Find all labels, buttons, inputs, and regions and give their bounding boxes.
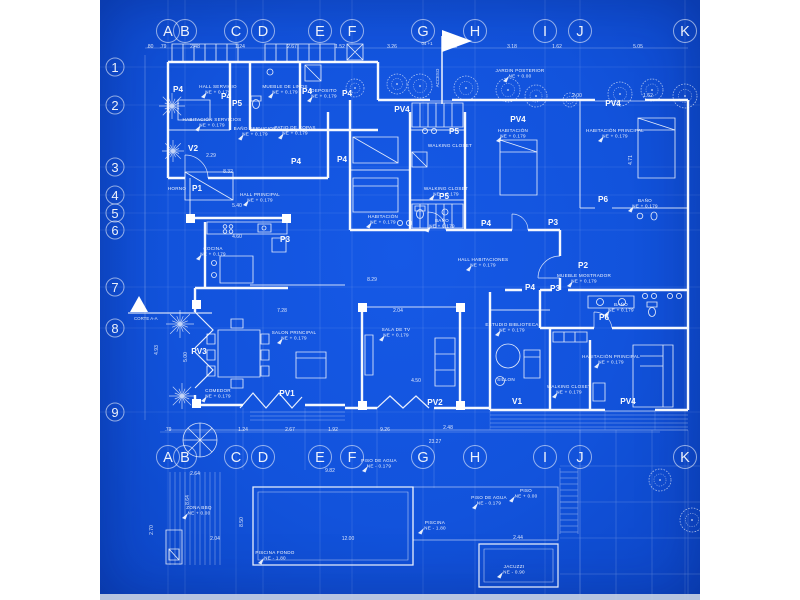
sink-icon [637,213,643,219]
room-label: COMEDORNE + 0.179 [205,388,231,399]
room-label: DEPOSITONE + 0.179 [311,88,337,99]
grid-column-label: I [543,450,547,466]
grid-column-label: K [680,450,690,466]
dimension-label: 8.64 [185,495,191,505]
section-cut-triangle-icon [130,296,148,312]
grid-row-label: 8 [111,321,118,336]
dimension-label: 2.67 [287,44,297,50]
paper-edge-strip [100,594,700,600]
palm-tree-icon [159,93,185,119]
dimension-label: 2.29 [206,153,216,159]
reference-lines [145,48,688,488]
toilet-icon [649,308,656,317]
room-label: WALKING CLOSETNE + 0.179 [547,384,591,395]
dimension-label: 3.26 [387,44,397,50]
dimension-label: 9.82 [325,468,335,474]
room-label: MUEBLE MOSTRADORNE + 0.179 [557,273,611,284]
stove-burner-icon [229,225,233,229]
dimension-label: 1.24 [235,44,245,50]
room-label: BAÑONE + 0.179 [429,217,455,229]
dimension-label: 2.44 [513,535,523,541]
dimension-label: 1.24 [238,427,248,433]
flag-side-note-label: 04 +1 [421,41,433,46]
grid-column-label: J [576,450,583,466]
door-code-label: V1 [512,397,522,406]
level-arrow-icon [503,76,509,83]
grid-column-label: F [348,24,357,40]
grid-column-label: G [417,24,428,40]
dimension-label: 2.04 [210,536,220,542]
grid-column-label: H [470,450,480,466]
dimension-label: 4.50 [411,378,421,384]
door-code-label: P4 [337,155,347,164]
dimension-label: .79 [165,427,172,433]
door-code-label: PV4 [620,397,636,406]
grid-row-label: 1 [111,60,118,75]
dimension-label: 2.00 [572,93,582,99]
room-label: PISO DE AGUANE - 0.179 [361,458,397,469]
dimension-label: 2.67 [285,427,295,433]
flag-note-label: ACCESO [435,68,440,87]
grid-column-label: B [180,450,190,466]
section-cut-label: CORTE A-A [134,316,158,321]
tree-icon [684,95,686,97]
stool-icon [212,273,217,278]
tree-icon [535,95,537,97]
level-arrow-icon [594,362,600,369]
door-code-label: P4 [221,92,231,101]
round-table-icon [496,344,520,368]
level-arrow-icon [509,496,515,503]
door-code-label: P4 [525,283,535,292]
dimension-label: 4.60 [232,234,242,240]
level-arrow-icon [268,92,274,99]
door-code-label: PV3 [191,347,207,356]
door-code-label: P5 [439,192,449,201]
note-labels: CORTE A-AACCESO04 +1 [134,41,440,321]
level-arrow-icon [238,134,244,141]
room-label: HALL PRINCIPALNE + 0.179 [240,192,280,203]
room-label: HABITACIÓN PRINCIPALNE + 0.179 [586,127,644,139]
door-code-label: P4 [302,87,312,96]
grid-column-label: I [543,24,547,40]
room-label: HORNO [168,186,187,191]
door-code-label: P3 [548,218,558,227]
level-arrow-icon [497,572,503,579]
sink-icon [267,69,273,75]
room-label: HABITACIÓNNE + 0.179 [498,127,528,139]
door-code-label: PV2 [427,398,443,407]
furniture [166,44,682,564]
sink-icon [442,209,448,215]
door-code-label: P2 [578,261,588,270]
dimension-label: 23.27 [429,439,442,445]
dimension-label: 9.26 [380,427,390,433]
tree-icon [651,89,653,91]
door-code-label: P5 [232,99,242,108]
dimension-label: 5.00 [183,352,189,362]
door-code-label: P5 [449,127,459,136]
dimension-label: 4.71 [628,155,634,165]
room-label: SALON PRINCIPALNE + 0.179 [272,330,317,341]
room-label: JACUZZINE - 0.90 [503,564,525,575]
room-label: HABITACIÓN SERVICIOSNE + 0.179 [183,116,242,128]
room-label: HALL HABITACIONESNE + 0.179 [458,257,509,268]
level-arrow-icon [466,265,472,272]
grid-column-label: D [258,450,268,466]
blueprint-sheet: AABBCCDDEEFFGGHHIIJJKK123456789 HALL SER… [100,0,700,600]
dimension-label: 4.93 [154,345,160,355]
level-arrow-icon [201,396,207,403]
room-label: PISONE + 0.00 [515,488,538,499]
grid-column-label: H [470,24,480,40]
dimension-label: 2.48 [190,44,200,50]
grid-column-label: D [258,24,268,40]
deck-and-steps [170,412,688,565]
room-label: ZONA BBQNE + 0.00 [186,505,212,516]
tree-icon [419,85,421,87]
grid-column-label: K [680,24,690,40]
floor-plan-drawing: AABBCCDDEEFFGGHHIIJJKK123456789 HALL SER… [100,0,700,600]
palm-tree-icon [166,310,194,338]
level-arrow-icon [598,136,604,143]
dimension-label: .80 [147,44,154,50]
grid-column-label: E [315,24,325,40]
dimension-label: 1.52 [335,44,345,50]
deck-planks [170,472,220,565]
room-label: PISCINA FONDONE - 1.80 [255,550,294,561]
door-code-label: PV4 [394,105,410,114]
tree-icon [354,87,356,89]
room-label: JARDIN POSTERIORNE + 0.00 [496,68,545,79]
grid-column-label: A [163,24,173,40]
room-label: PISO DE AGUANE - 0.179 [471,495,507,506]
grid-column-label: C [231,24,241,40]
level-arrow-icon [196,254,202,261]
tree-icon [691,519,693,521]
tree-icon [659,479,661,481]
level-arrow-icon [278,133,284,140]
dimension-label: 2.64 [190,471,200,477]
level-arrow-icon [277,338,283,345]
dimension-label: 5.05 [633,44,643,50]
room-label: WALKING CLOSET [428,143,472,148]
terrace-steps [250,412,688,427]
room-label: HABITACIÓNNE + 0.179 [368,213,398,225]
room-label: BAÑONE + 0.179 [608,301,634,313]
level-arrow-icon [195,125,201,132]
palm-tree-icon [162,140,184,162]
door-code-label: PV4 [605,99,621,108]
dimension-label: 8.50 [239,517,245,527]
dimension-label: 2.70 [149,525,155,535]
dimension-label: 1.62 [643,93,653,99]
door-code-label: P1 [192,184,202,193]
grid-column-label: G [417,450,428,466]
tree-icon [396,83,398,85]
dimension-label: 2.48 [447,44,457,50]
level-arrow-icon [201,92,207,99]
sink-drain-icon [262,226,266,230]
room-label: SALA DE TVNE + 0.179 [382,327,411,338]
grid-column-label: B [180,24,190,40]
dimension-label: 2.48 [443,425,453,431]
door-code-label: P6 [599,313,609,322]
level-arrow-icon [307,96,313,103]
dimension-label: .79 [160,44,167,50]
tree-icon [619,93,621,95]
dimension-label: 5.40 [232,203,242,209]
level-arrow-icon [495,330,501,337]
level-arrow-icon [552,392,558,399]
dimension-label: 3.18 [507,44,517,50]
stool-icon [212,261,217,266]
grid-column-label: A [163,450,173,466]
grid-column-label: F [348,450,357,466]
door-code-label: P4 [481,219,491,228]
grid-row-label: 3 [111,160,118,175]
door-code-label: P4 [342,89,352,98]
tree-icon [569,99,571,101]
furniture-outlines [166,44,675,564]
dimension-label: 1.92 [328,427,338,433]
door-code-label: V2 [188,144,198,153]
sink-icon [597,299,604,306]
door-code-label: P4 [291,157,301,166]
grid-column-label: C [231,450,241,466]
level-arrow-icon [379,335,385,342]
door-code-label: P3 [550,284,560,293]
dimension-label: 8.29 [367,277,377,283]
grid-column-label: E [315,450,325,466]
room-label: BAÑO SERVICIOSNE + 0.179 [234,125,277,137]
level-arrow-icon [628,206,634,213]
grid-row-label: 5 [111,206,118,221]
pool-ladder [560,468,578,534]
grid-row-label: 7 [111,280,118,295]
dimension-label: 12.00 [342,536,355,542]
door-code-label: P4 [173,85,183,94]
dimension-label: 7.28 [277,308,287,314]
dimension-label: 8.32 [223,169,233,175]
grid-row-label: 9 [111,405,118,420]
grid-row-label: 2 [111,98,118,113]
room-label: COCINANE + 0.179 [200,246,226,257]
room-label: PISCINANE - 1.80 [424,520,446,531]
room-label: ESTUDIO BIBLIOTECANE + 0.179 [485,322,539,333]
grid-row-label: 4 [111,188,118,203]
tree-icon [680,508,700,532]
level-arrow-icon [366,222,372,229]
level-arrow-icon [243,200,249,207]
door-swing-arcs [185,155,612,328]
tree-icon [507,89,509,91]
door-code-label: P3 [280,235,290,244]
blueprint-page: AABBCCDDEEFFGGHHIIJJKK123456789 HALL SER… [0,0,800,600]
level-arrow-icon [362,466,368,473]
palm-tree-icon [169,383,195,409]
room-label: BAÑONE + 0.179 [632,197,658,209]
door-code-label: P6 [598,195,608,204]
door-code-label: PV1 [279,389,295,398]
level-arrow-icon [496,136,502,143]
room-label: HALL SERVICIONE + 0.179 [199,84,237,95]
grid-column-label: J [576,24,583,40]
grid-row-label: 6 [111,223,118,238]
dimension-label: 2.04 [393,308,403,314]
door-code-label: PV4 [510,115,526,124]
dimension-label: 1.62 [552,44,562,50]
stove-burner-icon [223,225,227,229]
room-label: SILLON [497,377,515,382]
tree-icon [465,87,467,89]
level-arrow-icon [567,281,573,288]
